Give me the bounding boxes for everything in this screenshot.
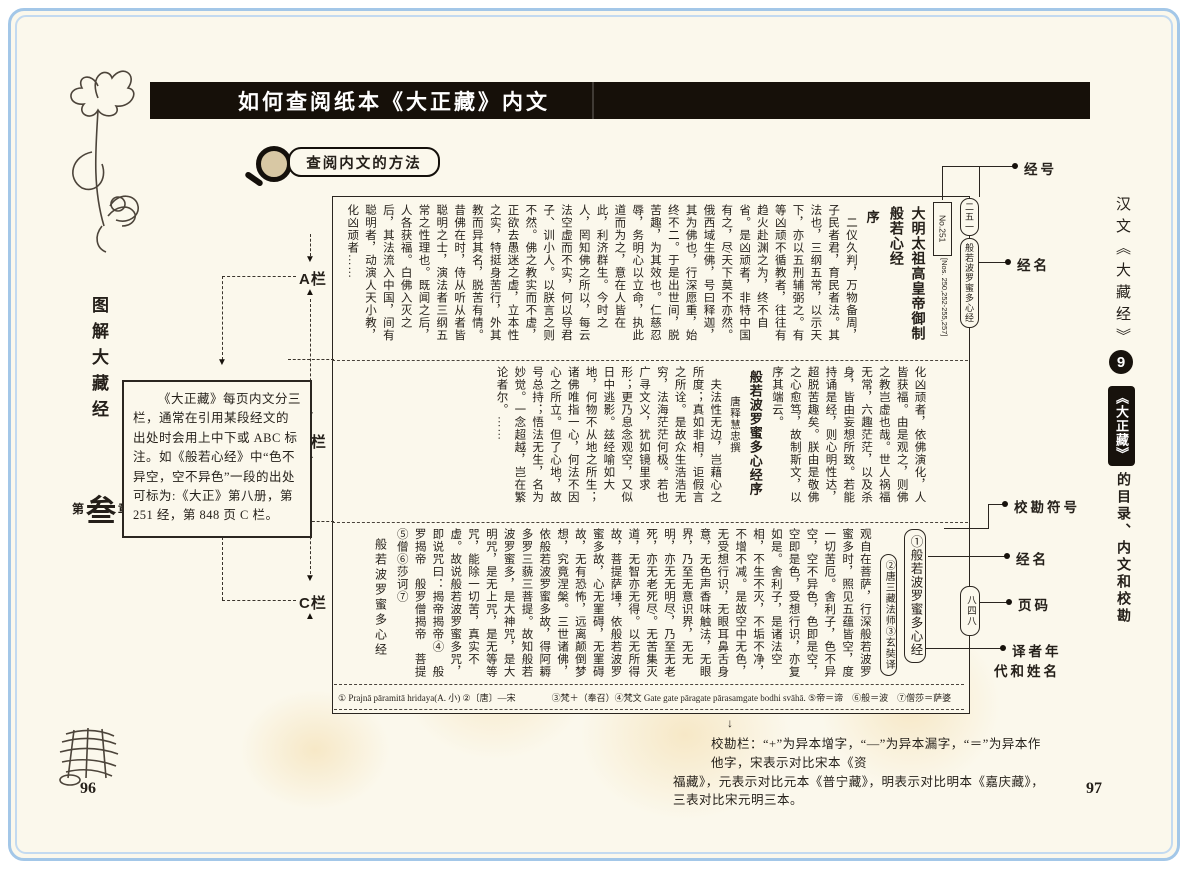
band-divider-bc [332, 522, 968, 523]
label-sutra-number: 经号 [1024, 158, 1057, 178]
dashed-guide [222, 532, 223, 600]
section-title-bar: 如何查阅纸本《大正藏》内文 [150, 82, 1090, 119]
page-number-oval: 八四八 [960, 586, 980, 636]
label-column-c: C栏 [299, 592, 327, 613]
label-sutra-name-top: 经名 [1017, 254, 1050, 274]
connector-dot [1005, 259, 1011, 265]
arrow-down-icon: ▼ [305, 255, 315, 265]
dashed-guide [310, 234, 311, 256]
connector-line [926, 648, 1002, 649]
footnote-arrow-icon: ↓ [727, 716, 733, 731]
chapter-numeral: 叁 [86, 486, 116, 530]
lotus-figure-illustration [52, 56, 144, 291]
sutra-number-refs: [Nos. 250,252-255,257] [935, 258, 949, 376]
collation-footnote: 校勘栏：“+”为异本增字，“—”为异本漏字，“＝”为异本作他字，宋表示对比宋本《… [655, 735, 1050, 810]
section-title: 如何查阅纸本《大正藏》内文 [238, 86, 550, 116]
label-column-a: A栏 [299, 268, 327, 289]
label-collation-marks: 校勘符号 [1014, 496, 1080, 516]
connector-line [980, 602, 1008, 603]
sidebar-chapter-subtitle: 的目录、内文和校勘 [1112, 472, 1132, 625]
band-c-text: ①般若波罗蜜多心经②唐三藏法师③玄奘译观自在菩萨，行深般若波罗蜜多时，照见五蕴皆… [338, 528, 930, 678]
connector-dot [1012, 163, 1018, 169]
sidebar-chapter-black-label: 《大正藏》 [1108, 386, 1135, 466]
page-number-right: 97 [1086, 780, 1102, 798]
connector-dot [1000, 645, 1006, 651]
sutra-number-label: No.251 [933, 202, 952, 256]
dashed-guide [222, 276, 223, 360]
apparatus-right: ③梵＋（奉召）④梵文 Gate gate pāragate pārasamgat… [552, 691, 952, 704]
connector-line [979, 166, 980, 197]
footnote-line1: 校勘栏：“+”为异本增字，“—”为异本漏字，“＝”为异本作他字，宋表示对比宋本《… [711, 735, 1050, 773]
sidebar-strip-title: 汉文《大藏经》 [1112, 196, 1133, 350]
book-spread: 图解大藏经 第 叁 章 如何查阅纸本《大正藏》内文 查阅内文的方法 汉文《大藏经… [0, 0, 1188, 869]
band-b-text: 化凶顽者，依佛演化，人皆获福。由是观之，则佛之教岂虚也哉。世人祸福无常，六趣茫茫… [338, 366, 930, 514]
band-divider-ab [332, 360, 968, 361]
method-pill: 查阅内文的方法 [288, 147, 440, 177]
connector-line [942, 166, 943, 200]
connector-line [988, 504, 989, 529]
arrow-up-icon: ▲ [305, 612, 315, 622]
arrow-up-icon: ▲ [305, 288, 315, 298]
chapter-prefix: 第 [72, 500, 84, 517]
connector-dot [1006, 599, 1012, 605]
arrow-down-icon: ▼ [305, 574, 315, 584]
label-translator-line2: 代和姓名 [994, 660, 1060, 680]
titlebar-seam [592, 82, 594, 119]
explain-box: 《大正藏》每页内文分三栏，通常在引用某段经文的出处时会用上中下或 ABC 标注。… [122, 380, 312, 538]
band-a-text: 大明太祖高皇帝御制般若心经序 二仪久判，万物备周，子民者君，育民者法。其法也，三… [338, 204, 930, 352]
dashed-guide [222, 276, 296, 277]
connector-line [942, 166, 1014, 167]
connector-line [928, 556, 1006, 557]
apparatus-row: ① Prajnā pāramitā hridaya(A. 小) ②〔唐〕—宋 ③… [334, 684, 964, 710]
magnifier-icon [256, 146, 292, 182]
running-header-title-oval: 般若波罗蜜多心经 [960, 238, 979, 328]
dashed-stub-ab [288, 359, 334, 360]
section-number-badge: 9 [1109, 350, 1133, 374]
connector-line [979, 262, 1007, 263]
method-label: 查阅内文的方法 [306, 152, 422, 173]
connector-dot [1002, 501, 1008, 507]
running-header-number-oval: 二五一 [960, 198, 979, 236]
explain-text: 《大正藏》每页内文分三栏，通常在引用某段经文的出处时会用上中下或 ABC 标注。… [133, 390, 301, 526]
dashed-guide [222, 600, 296, 601]
footnote-line2: 福藏》，元表示对比元本《普宁藏》，明表示对比明本《嘉庆藏》，三表对比宋元明三本。 [673, 773, 1050, 811]
label-sutra-name-bottom: 经名 [1016, 548, 1049, 568]
connector-dot [1004, 553, 1010, 559]
label-translator-line1: 译者年 [1012, 640, 1062, 660]
arrow-down-icon: ▼ [217, 358, 227, 368]
page-number-left: 96 [80, 780, 96, 798]
connector-line [944, 528, 988, 529]
series-title: 图解大藏经 [86, 296, 111, 426]
label-page-number: 页码 [1018, 594, 1051, 614]
apparatus-left: ① Prajnā pāramitā hridaya(A. 小) ②〔唐〕—宋 [338, 691, 516, 704]
